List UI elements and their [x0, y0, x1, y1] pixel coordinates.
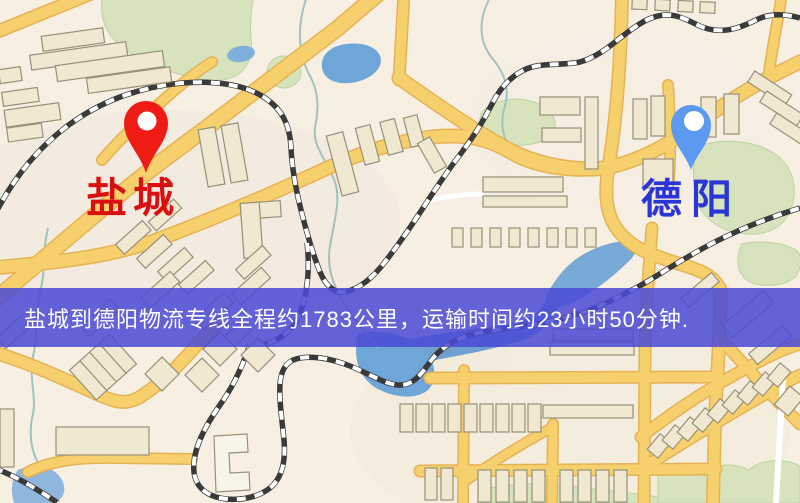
map-canvas[interactable]: [0, 0, 800, 503]
park-right-edge: [738, 242, 800, 285]
origin-city-label: 盐城: [86, 178, 180, 219]
route-info-banner: 盐城到德阳物流专线全程约1783公里，运输时间约23小时50分钟.: [0, 288, 800, 347]
route-info-text: 盐城到德阳物流专线全程约1783公里，运输时间约23小时50分钟.: [24, 302, 689, 334]
map-screenshot: 盐城 德阳 盐城到德阳物流专线全程约1783公里，运输时间约23小时50分钟.: [0, 0, 800, 503]
destination-city-label: 德阳: [641, 179, 741, 220]
